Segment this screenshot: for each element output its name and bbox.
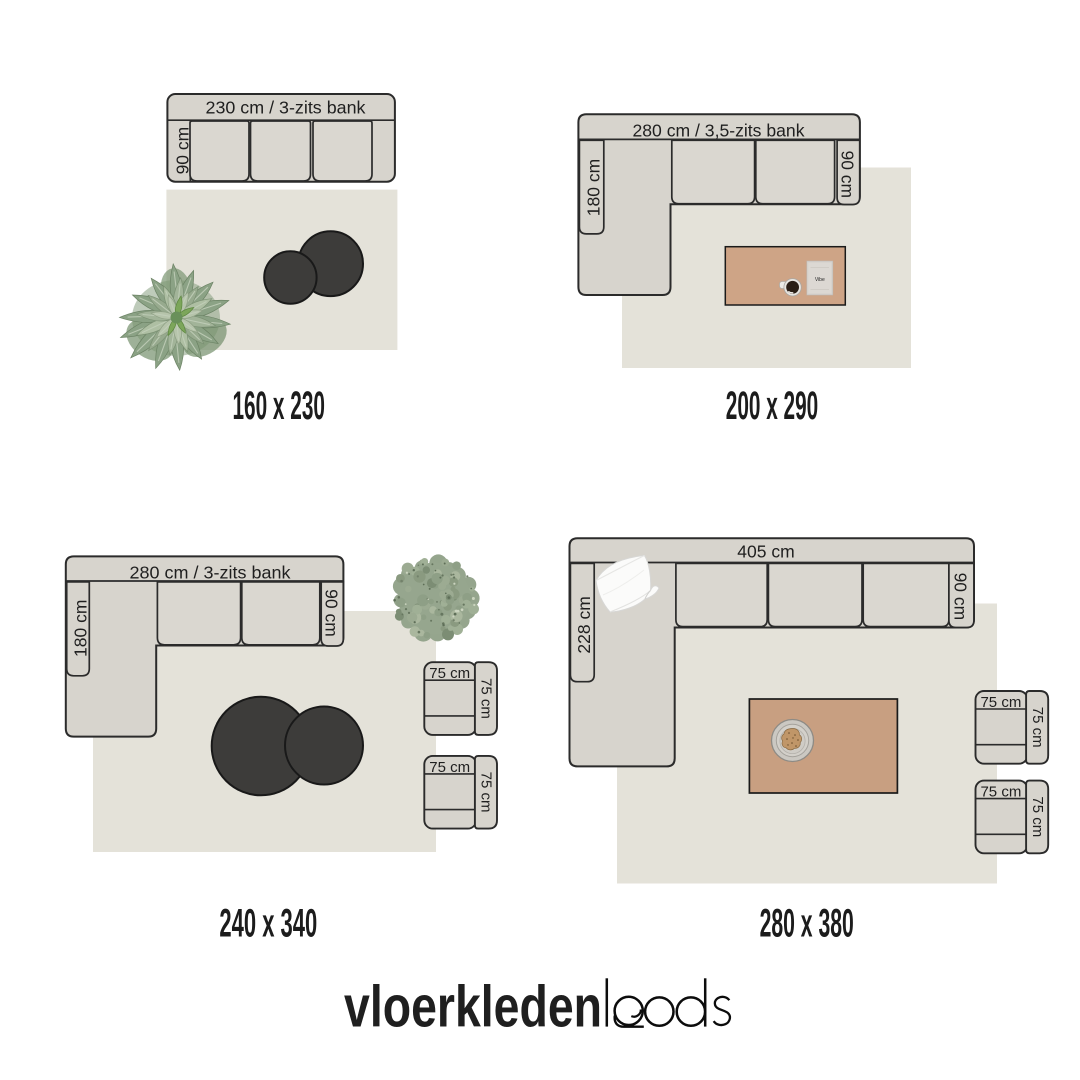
svg-text:160 x 230: 160 x 230 — [232, 383, 324, 428]
svg-text:240 x 340: 240 x 340 — [219, 901, 317, 946]
svg-text:200 x 290: 200 x 290 — [726, 383, 818, 428]
svg-text:90 cm: 90 cm — [322, 589, 342, 637]
svg-text:vloerkleden: vloerkleden — [344, 975, 602, 1040]
svg-text:280 x 380: 280 x 380 — [760, 900, 854, 945]
svg-text:Vibe: Vibe — [815, 277, 825, 283]
svg-text:230 cm / 3-zits bank: 230 cm / 3-zits bank — [206, 98, 366, 118]
svg-text:280 cm / 3-zits bank: 280 cm / 3-zits bank — [130, 562, 291, 582]
svg-text:180 cm: 180 cm — [71, 600, 91, 657]
svg-text:90 cm: 90 cm — [838, 150, 858, 198]
svg-text:90 cm: 90 cm — [950, 573, 970, 621]
svg-text:180 cm: 180 cm — [584, 159, 604, 216]
svg-text:405 cm: 405 cm — [737, 541, 794, 561]
svg-text:228 cm: 228 cm — [574, 596, 594, 653]
svg-text:280 cm / 3,5-zits bank: 280 cm / 3,5-zits bank — [633, 120, 805, 140]
svg-text:90 cm: 90 cm — [172, 127, 192, 175]
